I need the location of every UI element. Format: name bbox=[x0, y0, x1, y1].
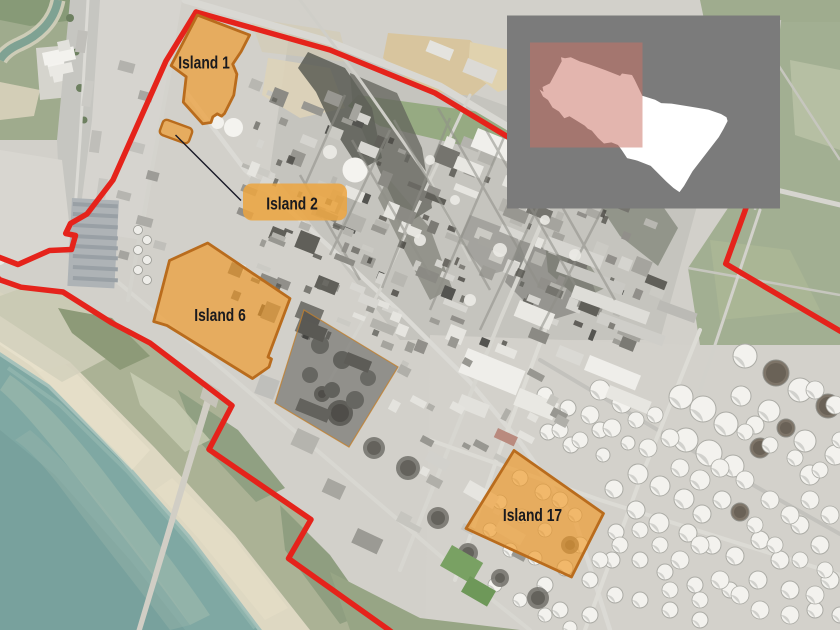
svg-text:Island 6: Island 6 bbox=[194, 305, 246, 325]
svg-text:Island 17: Island 17 bbox=[503, 505, 562, 525]
svg-text:Island 1: Island 1 bbox=[178, 53, 230, 73]
svg-text:Island 2: Island 2 bbox=[266, 194, 318, 214]
